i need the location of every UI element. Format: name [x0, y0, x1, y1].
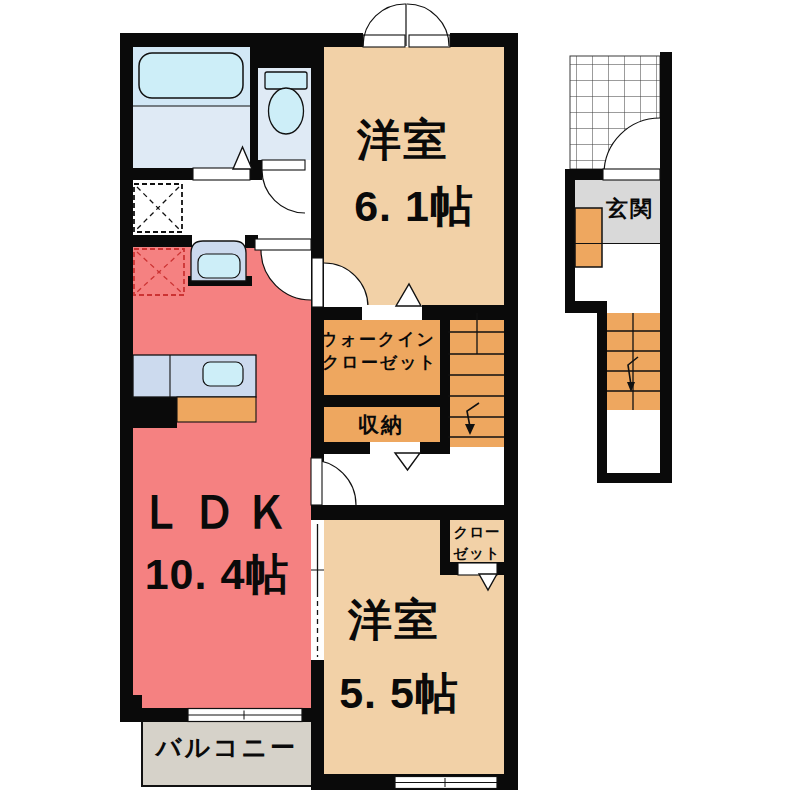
- bedroom2-label: 洋室: [348, 598, 440, 642]
- floor-plan: 洋室 6. 1帖 ＬＤＫ 10. 4帖 洋室 5. 5帖 ウォークイン クローゼ…: [0, 0, 798, 800]
- closet-label-line2: ゼット: [453, 546, 501, 561]
- bedroom1-size: 6. 1帖: [354, 185, 474, 228]
- kitchen-sink-icon: [203, 362, 243, 386]
- ldk-size: 10. 4帖: [145, 553, 290, 596]
- bedroom2-size: 5. 5帖: [339, 672, 459, 715]
- bathtub-icon: [139, 53, 243, 98]
- wic-label-line2: クローゼット: [322, 354, 438, 371]
- bathroom-floor: [133, 106, 250, 170]
- bedroom1-label: 洋室: [357, 118, 449, 162]
- ldk-floor: [133, 247, 311, 708]
- stairs-2f-floor: [448, 313, 504, 447]
- balcony-label: バルコニー: [156, 735, 298, 760]
- window: [395, 777, 497, 789]
- washbasin-icon: [191, 241, 246, 281]
- washing-machine-pan-icon: [134, 184, 182, 232]
- window: [188, 709, 302, 722]
- storage-label: 収納: [358, 414, 404, 435]
- wic-label-line1: ウォークイン: [320, 331, 436, 348]
- door-swing-triangle-icon: [395, 453, 420, 470]
- toilet-tank-icon: [265, 72, 307, 89]
- double-door-window: [363, 4, 450, 47]
- toilet-icon: [269, 88, 304, 134]
- sliding-door: [311, 520, 324, 660]
- bedroom1-floor: [324, 47, 504, 305]
- shoe-cabinet-icon: [575, 208, 602, 267]
- entrance-label: 玄関: [606, 198, 654, 220]
- closet-label-line1: クロー: [453, 525, 500, 540]
- ldk-label: ＬＤＫ: [139, 488, 298, 535]
